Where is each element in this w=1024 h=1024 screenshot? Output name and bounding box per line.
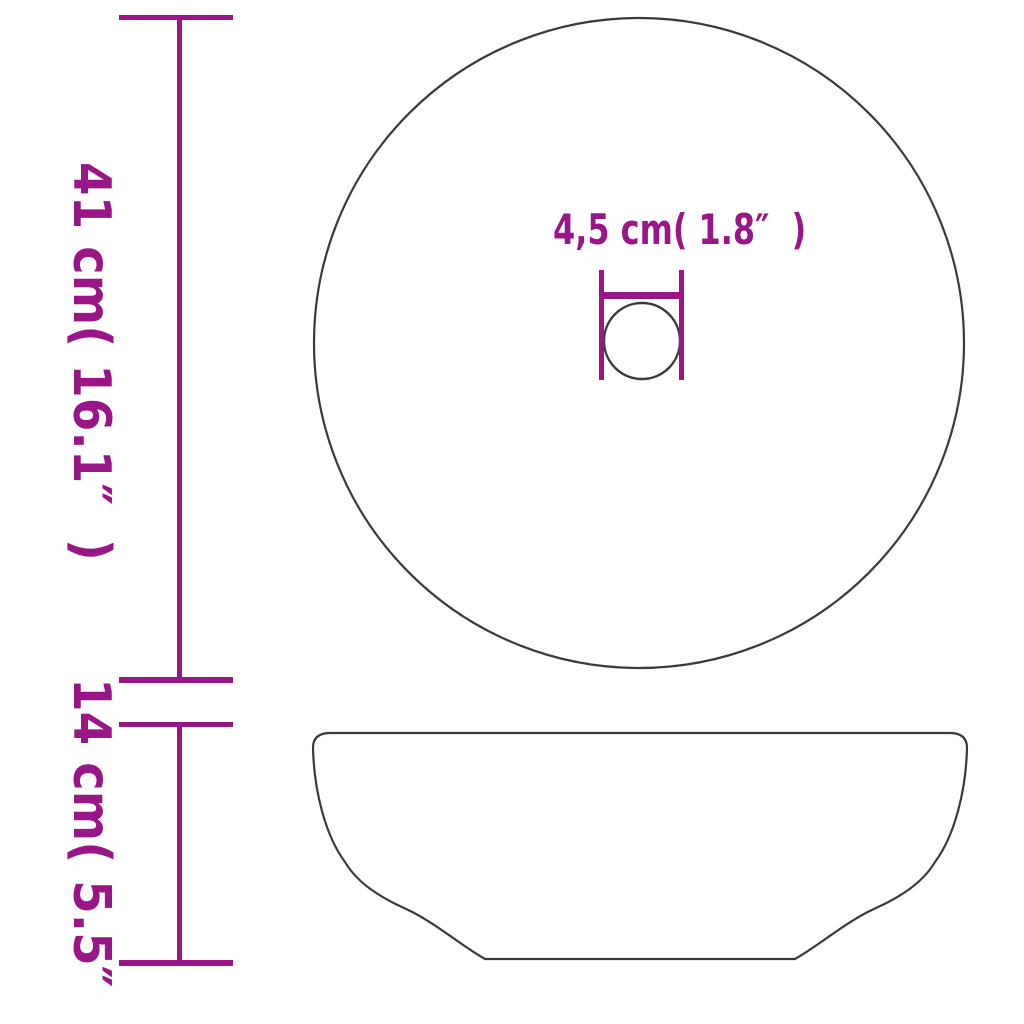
basin-top-view-outline bbox=[314, 18, 964, 668]
dim-drain-left-tick bbox=[599, 270, 604, 380]
dim-drain-right-tick bbox=[679, 270, 684, 380]
dim-basin-height-line bbox=[177, 722, 182, 966]
diagram-canvas: 41 cm( 16.1″ ) 14 cm( 5.5″ ) 4,5 cm( 1.8… bbox=[0, 0, 1024, 1024]
dim-drain-bar bbox=[599, 292, 684, 299]
dim-total-line bbox=[177, 15, 182, 683]
product-outline-drawing bbox=[0, 0, 1024, 1024]
drain-hole-outline bbox=[604, 303, 680, 379]
dim-basin-height-top-cap bbox=[119, 722, 233, 727]
dim-total-top-cap bbox=[119, 15, 233, 20]
dim-label-basin-height: 14 cm( 5.5″ ) bbox=[65, 678, 117, 1024]
dim-total-bottom-cap bbox=[119, 677, 233, 683]
basin-side-view-outline bbox=[313, 733, 967, 959]
dim-label-drain-diameter: 4,5 cm( 1.8″ ) bbox=[553, 206, 806, 254]
dim-basin-height-bottom-cap bbox=[119, 960, 233, 966]
dim-label-total-diameter: 41 cm( 16.1″ ) bbox=[65, 162, 117, 561]
